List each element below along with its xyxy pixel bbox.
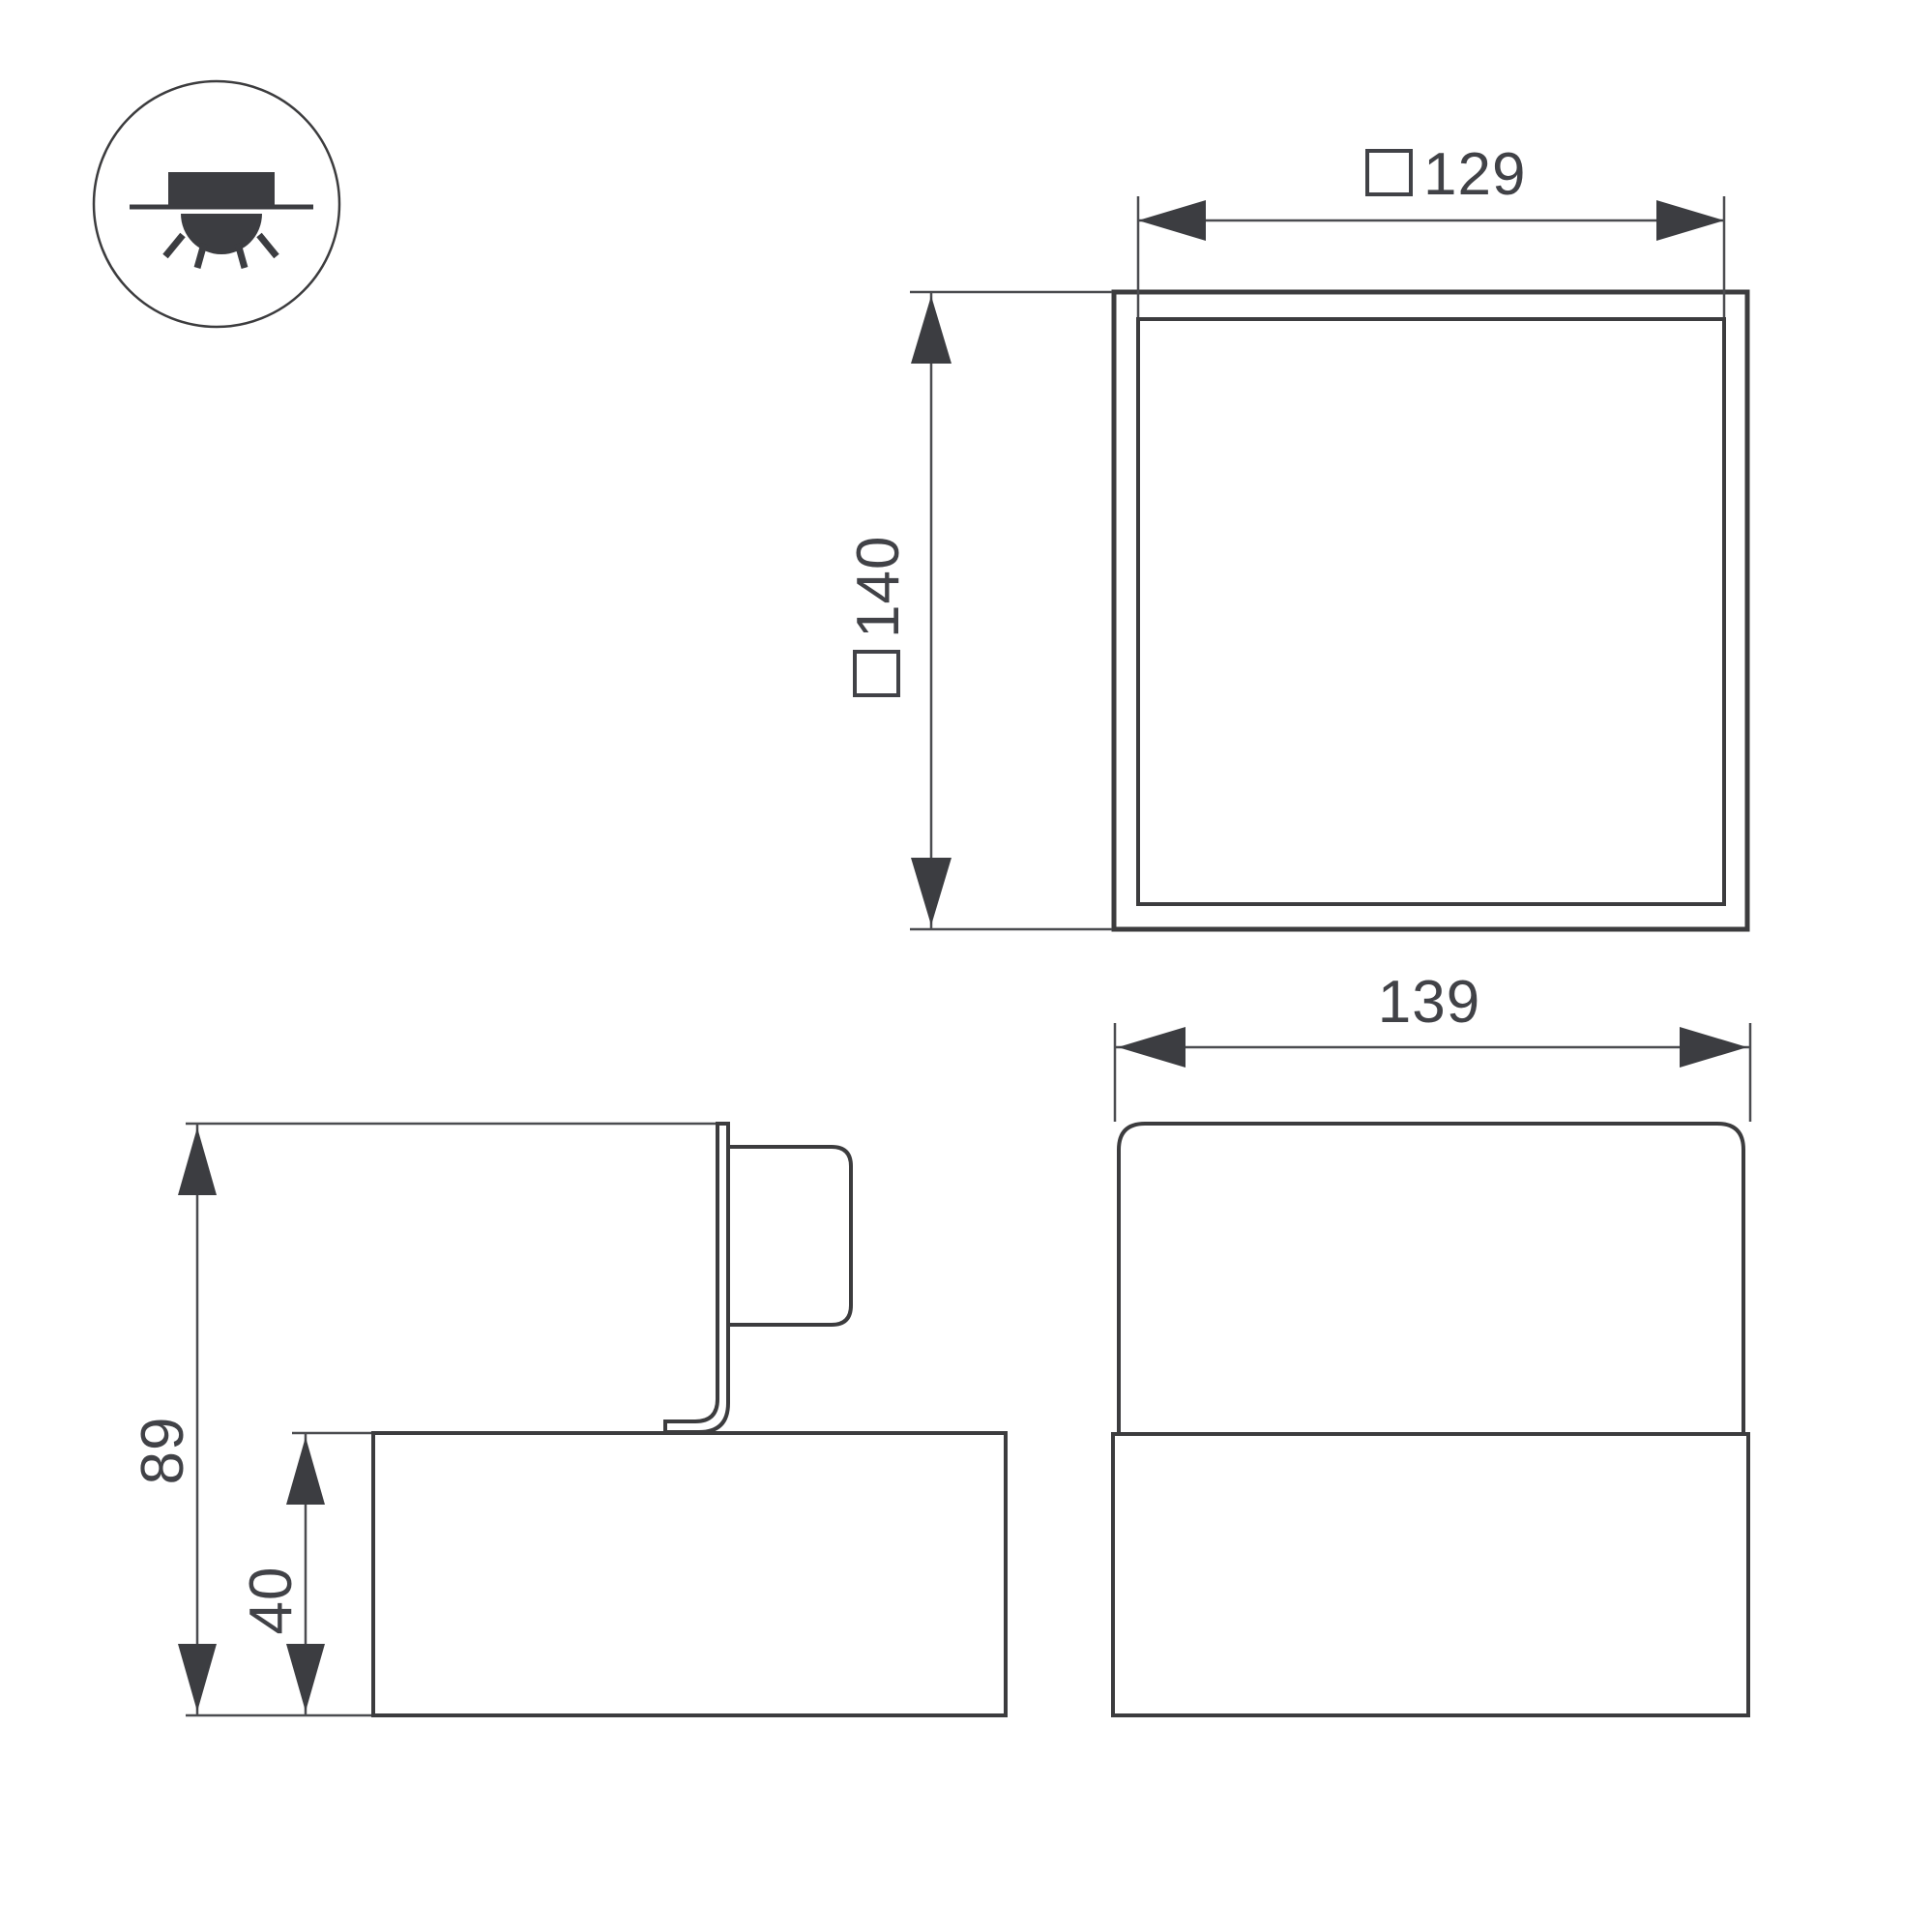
dim-139-arrow-left xyxy=(1118,1027,1186,1068)
side-view-mount-clip xyxy=(728,1147,851,1325)
top-view-outer-square xyxy=(1114,292,1747,929)
front-view-base-box xyxy=(1113,1434,1748,1715)
top-view-inner-square xyxy=(1138,319,1724,904)
dim-40-label: 40 xyxy=(238,1566,305,1635)
mount-type-icon xyxy=(94,81,339,327)
dim-129-label: 129 xyxy=(1423,141,1526,208)
dim-139-arrow-right xyxy=(1680,1027,1747,1068)
dim-140-arrow-bottom xyxy=(911,858,951,925)
dimension-drawing: 129 140 89 xyxy=(0,0,1932,1932)
dim-139-label: 139 xyxy=(1378,969,1480,1036)
icon-light-ray-2 xyxy=(197,244,204,268)
dim-129-arrow-left xyxy=(1138,200,1206,241)
icon-housing-block xyxy=(168,172,275,205)
top-view: 129 140 xyxy=(845,141,1747,929)
dim-129-arrow-right xyxy=(1656,200,1724,241)
front-view: 139 xyxy=(1113,969,1750,1715)
icon-lamp-dome xyxy=(181,214,262,254)
drawing-canvas: 129 140 89 xyxy=(0,0,1932,1932)
side-view: 89 40 xyxy=(130,1124,1006,1715)
dim-140-label: 140 xyxy=(845,536,912,638)
icon-light-ray-4 xyxy=(259,235,277,256)
dimension-40: 40 xyxy=(238,1433,371,1715)
dim-89-arrow-top xyxy=(178,1127,217,1195)
dim-140-arrow-top xyxy=(911,296,951,364)
square-dimension-symbol xyxy=(1367,151,1411,194)
dim-40-arrow-bottom xyxy=(286,1644,325,1712)
icon-light-ray-1 xyxy=(165,235,183,256)
dim-89-arrow-bottom xyxy=(178,1644,217,1712)
front-view-shade xyxy=(1119,1124,1743,1433)
side-view-base-box xyxy=(373,1433,1006,1715)
dimension-139: 139 xyxy=(1115,969,1750,1122)
dim-40-arrow-top xyxy=(286,1437,325,1505)
dimension-140: 140 xyxy=(845,292,1112,929)
square-dimension-symbol xyxy=(855,652,898,695)
side-view-bracket-plate xyxy=(665,1124,728,1432)
dim-89-label: 89 xyxy=(130,1417,196,1485)
